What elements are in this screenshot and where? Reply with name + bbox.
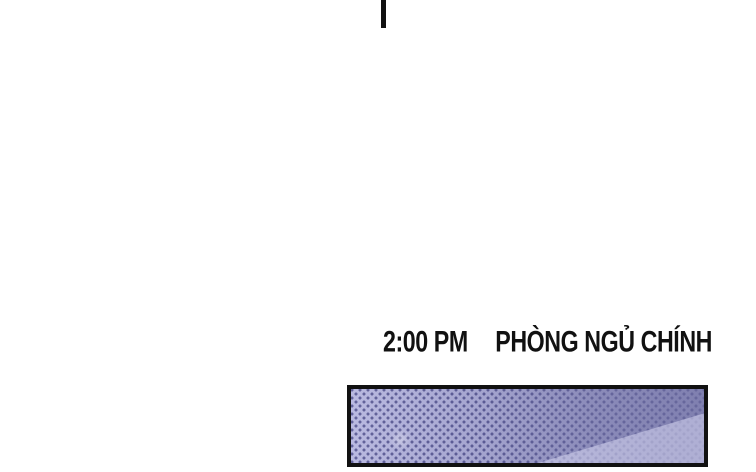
caption-location: PHÒNG NGỦ CHÍNH <box>495 327 712 359</box>
comic-page: 2:00 PM PHÒNG NGỦ CHÍNH <box>0 0 756 472</box>
panel-divider-line <box>381 0 386 28</box>
caption-time: 2:00 PM <box>383 327 468 359</box>
scene-caption: 2:00 PM PHÒNG NGỦ CHÍNH <box>383 327 712 359</box>
comic-panel-halftone <box>347 385 708 467</box>
